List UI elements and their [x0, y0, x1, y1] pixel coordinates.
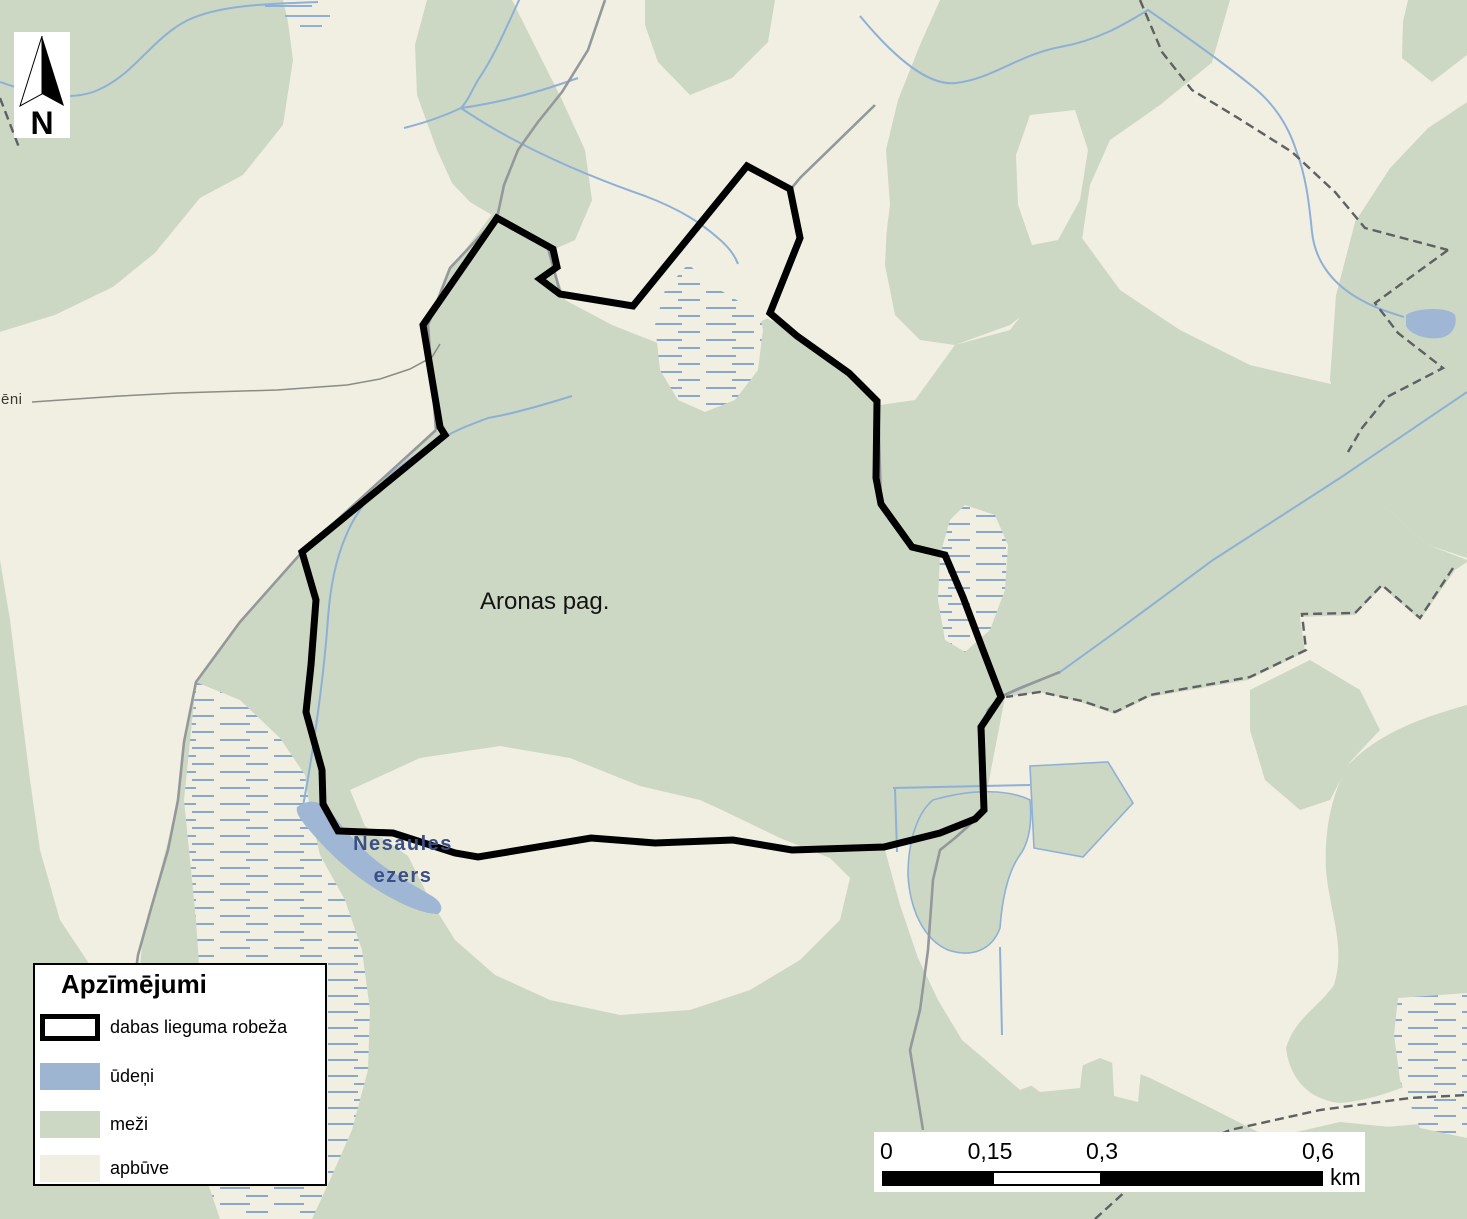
village-label: sēni: [0, 391, 23, 408]
legend-item-label: dabas lieguma robeža: [110, 1017, 287, 1038]
legend-item-built: apbūve: [35, 1155, 325, 1183]
scale-segment: [992, 1171, 1102, 1186]
legend: Apzīmējumi dabas lieguma robeža ūdeņi me…: [33, 963, 327, 1186]
scale-bar-segments: [882, 1171, 1323, 1186]
map-screenshot: sēni Aronas pag. Nesaules ezers N Apzīmē…: [0, 0, 1467, 1219]
north-arrow-icon: [14, 32, 70, 112]
region-label: Aronas pag.: [480, 588, 609, 616]
legend-title: Apzīmējumi: [61, 969, 207, 1000]
scale-tick: 0,15: [968, 1138, 1013, 1165]
scale-tick: 0,6: [1302, 1138, 1334, 1165]
lake-label-line2: ezers: [328, 860, 478, 892]
legend-item-forest: meži: [35, 1111, 325, 1139]
scale-segment: [882, 1171, 992, 1186]
lake-label-line1: Nesaules: [328, 828, 478, 860]
scale-tick: 0,3: [1086, 1138, 1118, 1165]
north-arrow: N: [14, 32, 70, 138]
forest-swatch: [40, 1111, 100, 1138]
lake-label: Nesaules ezers: [328, 828, 478, 892]
legend-item-water: ūdeņi: [35, 1063, 325, 1091]
legend-item-label: apbūve: [110, 1158, 169, 1179]
legend-item-label: ūdeņi: [110, 1066, 154, 1087]
legend-item-label: meži: [110, 1114, 148, 1135]
scale-unit-label: km: [1330, 1164, 1361, 1191]
scale-bar: 0 0,15 0,3 0,6 km: [874, 1132, 1365, 1192]
water-swatch: [40, 1063, 100, 1090]
legend-item-boundary: dabas lieguma robeža: [35, 1014, 325, 1042]
boundary-swatch: [40, 1014, 100, 1041]
north-letter: N: [14, 105, 70, 142]
built-swatch: [40, 1155, 100, 1182]
scale-tick: 0: [880, 1138, 893, 1165]
scale-segment: [1102, 1171, 1323, 1186]
